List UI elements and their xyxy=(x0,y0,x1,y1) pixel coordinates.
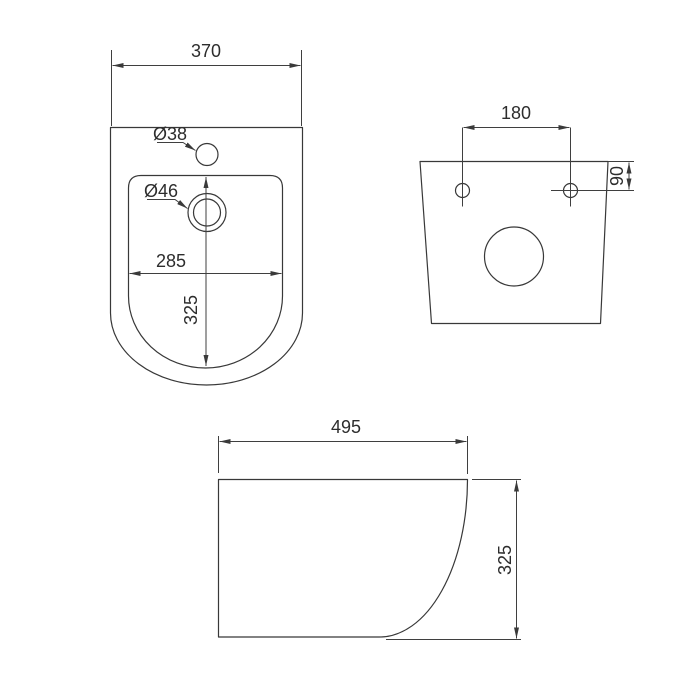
drain-inner-circle xyxy=(194,199,221,226)
faucet-hole-label: Ø38 xyxy=(153,124,187,144)
technical-drawing-canvas: 370 Ø38 Ø46 285 325 xyxy=(0,0,700,700)
back-view: 180 90 xyxy=(420,103,634,324)
inner-depth-dimension-label: 325 xyxy=(181,295,201,325)
length-dimension-label: 495 xyxy=(331,417,361,437)
waste-outlet-circle xyxy=(485,227,544,286)
hole-spacing-dimension-label: 180 xyxy=(501,103,531,123)
faucet-hole-circle xyxy=(196,144,218,166)
hole-offset-dimension-label: 90 xyxy=(607,166,627,186)
top-view: 370 Ø38 Ø46 285 325 xyxy=(111,41,303,385)
back-view-outline xyxy=(420,162,608,324)
bidet-technical-drawing: 370 Ø38 Ø46 285 325 xyxy=(0,0,700,700)
height-dimension-label: 325 xyxy=(495,545,515,575)
side-view: 495 325 xyxy=(219,417,522,640)
side-view-outline xyxy=(219,480,468,638)
width-dimension-label: 370 xyxy=(191,41,221,61)
inner-width-dimension-label: 285 xyxy=(156,251,186,271)
drain-label: Ø46 xyxy=(144,181,178,201)
